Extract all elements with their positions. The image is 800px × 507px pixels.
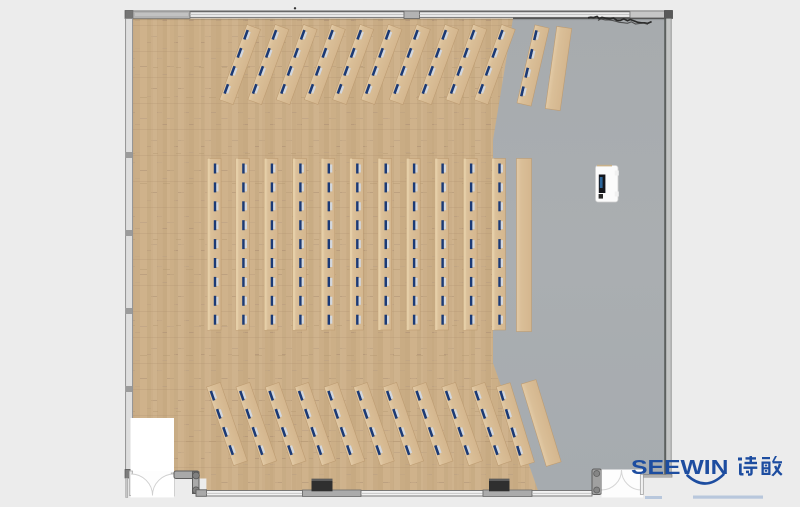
svg-text:SEEWIN: SEEWIN: [631, 456, 729, 479]
